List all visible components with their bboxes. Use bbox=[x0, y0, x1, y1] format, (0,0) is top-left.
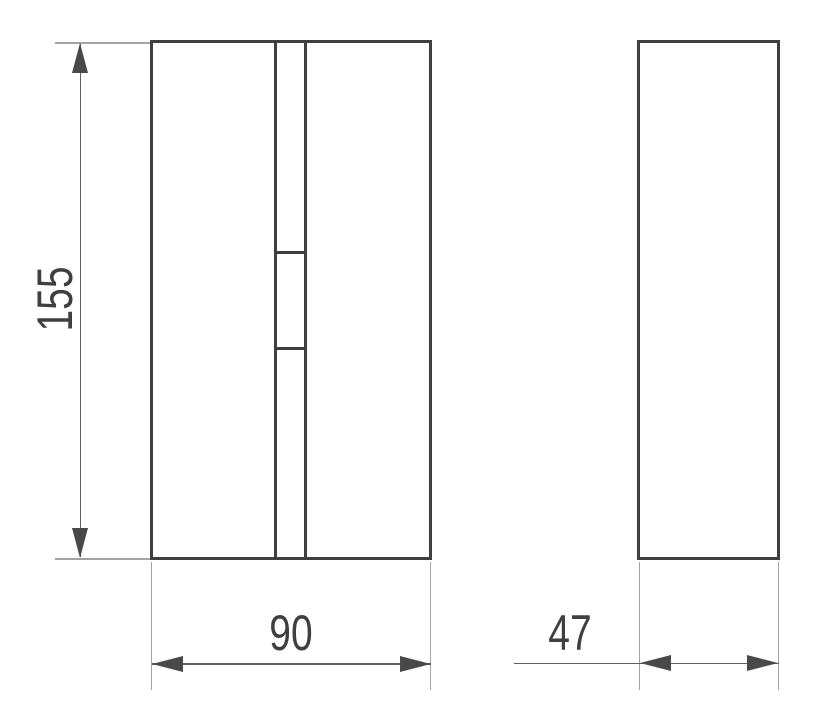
height-extension-line-top bbox=[55, 42, 150, 44]
technical-drawing-canvas: 155 90 47 bbox=[0, 0, 837, 720]
width-arrowhead-right-icon bbox=[400, 656, 431, 672]
depth-arrowhead-left-icon bbox=[640, 655, 671, 671]
depth-dimension-label: 47 bbox=[548, 608, 591, 658]
slot-left-line bbox=[274, 43, 277, 557]
width-arrowhead-left-icon bbox=[152, 656, 183, 672]
height-arrowhead-down-icon bbox=[72, 528, 88, 558]
width-dimension-label: 90 bbox=[269, 608, 312, 658]
height-dimension-label: 155 bbox=[30, 266, 80, 331]
height-extension-line-bottom bbox=[55, 558, 150, 560]
slot-upper-notch-line bbox=[277, 251, 304, 254]
height-arrowhead-up-icon bbox=[72, 43, 88, 73]
front-view-outline bbox=[150, 40, 432, 560]
side-view-outline bbox=[637, 40, 780, 560]
slot-lower-notch-line bbox=[277, 347, 304, 350]
width-dimension-line bbox=[152, 663, 431, 665]
depth-arrowhead-right-icon bbox=[747, 655, 778, 671]
slot-right-line bbox=[304, 43, 307, 557]
